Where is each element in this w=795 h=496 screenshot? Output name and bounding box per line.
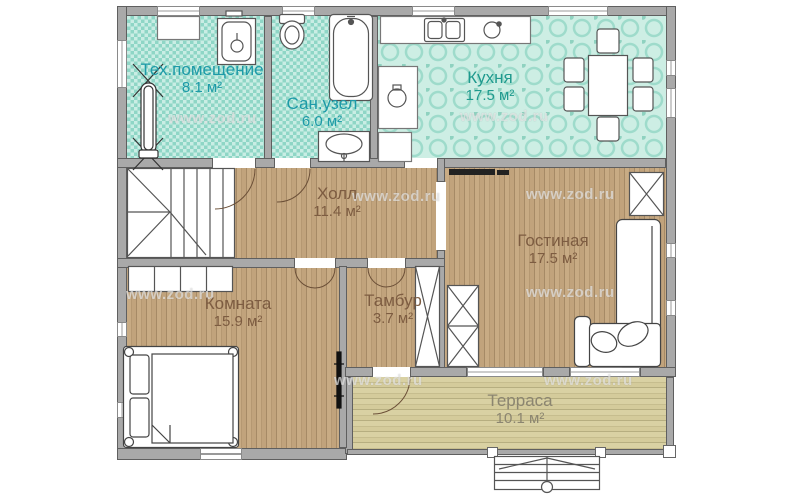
room-kitchen-floor — [378, 16, 666, 158]
door-opening — [368, 258, 405, 268]
window — [412, 6, 455, 16]
room-name: Гостиная — [517, 231, 588, 250]
watermark: www.zod.ru — [334, 372, 423, 389]
room-area: 15.9 м² — [205, 313, 272, 331]
window-terrace-door — [467, 367, 543, 377]
room-name: Тамбур — [364, 291, 422, 310]
wall-kitchen-living — [437, 158, 666, 168]
window — [117, 322, 127, 337]
room-label-tech: Тех.помещение 8.1 м² — [140, 60, 263, 97]
window — [666, 88, 676, 118]
room-area: 6.0 м² — [287, 113, 358, 131]
window — [117, 40, 127, 88]
room-area: 8.1 м² — [140, 79, 263, 97]
watermark: www.zod.ru — [526, 284, 615, 301]
terrace-post — [663, 445, 676, 458]
room-area: 10.1 м² — [487, 410, 552, 428]
window — [200, 448, 242, 460]
door-opening — [405, 158, 437, 168]
wall-mid-horizontal — [310, 158, 405, 168]
room-name: Терраса — [487, 391, 552, 410]
wall-terrace-right — [666, 377, 674, 455]
floor-plan: www.zod.ru www.zod.ru www.zod.ru www.zod… — [0, 0, 795, 496]
wall-mid-horizontal — [117, 158, 213, 168]
steps-symbol — [495, 457, 600, 493]
watermark: www.zod.ru — [352, 188, 441, 205]
room-label-hall: Холл 11.4 м² — [313, 184, 361, 221]
wall-hall-bedroom — [117, 258, 295, 268]
room-area: 3.7 м² — [364, 310, 422, 328]
room-sanuzel-floor — [272, 16, 370, 158]
room-area: 17.5 м² — [466, 87, 515, 105]
watermark: www.zod.ru — [460, 108, 549, 125]
wall-sanuzel-kitchen — [370, 16, 378, 160]
wall-tech-sanuzel — [264, 16, 272, 160]
room-name: Комната — [205, 294, 272, 313]
wall-hall-living — [437, 158, 445, 182]
room-label-terrace: Терраса 10.1 м² — [487, 391, 552, 428]
watermark: www.zod.ru — [168, 110, 257, 127]
window — [282, 6, 315, 16]
room-label-tambur: Тамбур 3.7 м² — [364, 291, 422, 328]
watermark: www.zod.ru — [544, 372, 633, 389]
window — [666, 60, 676, 76]
window — [666, 300, 676, 316]
wall-bedroom-tambur — [339, 266, 347, 448]
wall-bottom-right — [640, 367, 676, 377]
room-name: Тех.помещение — [140, 60, 263, 79]
window — [117, 402, 127, 418]
window — [157, 6, 200, 16]
room-name: Холл — [313, 184, 361, 203]
window — [548, 6, 608, 16]
room-hall-floor — [127, 168, 437, 258]
door-opening — [213, 158, 255, 168]
watermark: www.zod.ru — [126, 286, 215, 303]
door-opening — [275, 158, 310, 168]
room-area: 11.4 м² — [313, 203, 361, 221]
window — [666, 243, 676, 258]
wall-tambur-living — [437, 266, 445, 377]
room-label-living: Гостиная 17.5 м² — [517, 231, 588, 268]
room-label-bedroom: Комната 15.9 м² — [205, 294, 272, 331]
door-opening — [295, 258, 335, 268]
room-label-sanuzel: Сан.узел 6.0 м² — [287, 94, 358, 131]
room-name: Кухня — [466, 68, 515, 87]
wall-mid-horizontal — [255, 158, 275, 168]
room-area: 17.5 м² — [517, 250, 588, 268]
terrace-post — [487, 447, 498, 458]
room-name: Сан.узел — [287, 94, 358, 113]
watermark: www.zod.ru — [526, 186, 615, 203]
room-label-kitchen: Кухня 17.5 м² — [466, 68, 515, 105]
wall-terrace-bottom — [347, 449, 673, 455]
terrace-post — [595, 447, 606, 458]
